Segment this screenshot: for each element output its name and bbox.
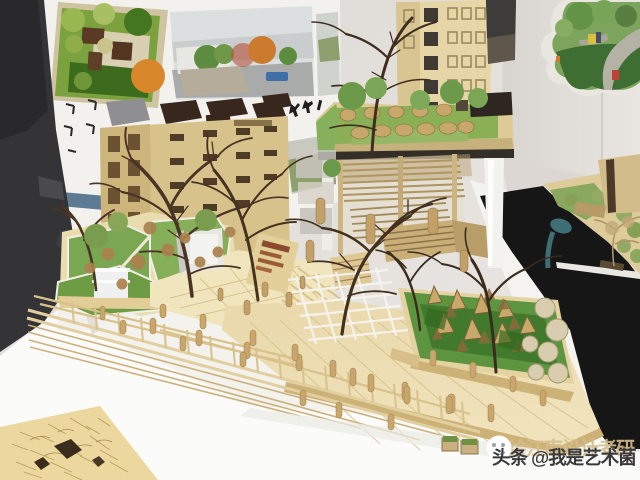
svg-text:头条 @我是艺术菌: 头条 @我是艺术菌: [492, 447, 636, 468]
